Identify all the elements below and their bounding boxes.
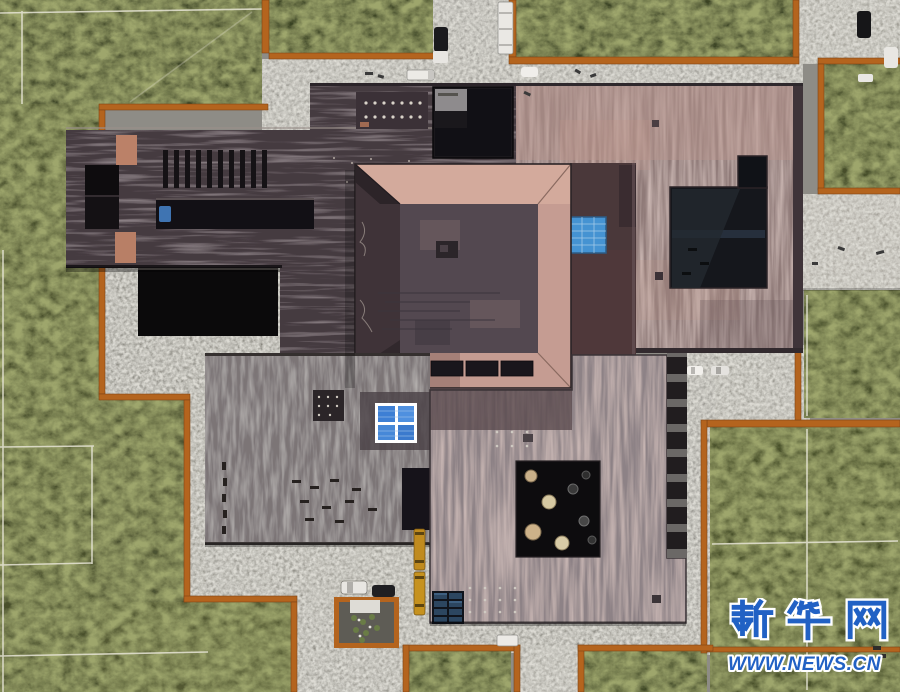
courtyard-lightwell — [433, 87, 513, 158]
solar-panels — [432, 591, 464, 624]
grass-bottom-a — [409, 651, 511, 692]
grass-right-upper — [824, 64, 900, 190]
wing-lightwell-a — [85, 165, 119, 195]
grass-top-mid — [269, 0, 433, 53]
vehicle-white-van — [858, 74, 873, 82]
roof-gap-slot — [402, 468, 431, 530]
blue-skylight — [570, 217, 606, 253]
vehicle-silver-car — [711, 366, 729, 375]
salmon-roof-patch — [115, 232, 136, 263]
vehicle-white-car — [687, 366, 703, 375]
equipment-enclosure — [334, 597, 399, 648]
roof-fins — [667, 353, 687, 558]
vehicle-white-car — [884, 47, 898, 68]
aerial-photo-canvas — [0, 0, 900, 692]
grass-top-left — [0, 0, 262, 104]
watermark-graphic: WWW.NEWS.CN — [724, 598, 900, 682]
southwest-wing-roof — [205, 353, 431, 545]
grass-top-strip — [516, 0, 793, 57]
vehicle-white-van — [433, 51, 448, 63]
roof-glass-slot — [156, 199, 314, 229]
vehicle-black-car — [857, 11, 871, 38]
watermark-url: WWW.NEWS.CN — [728, 654, 882, 675]
vehicle-white-car — [521, 67, 538, 77]
vehicle-white-car — [341, 581, 367, 594]
dark-vent-panel — [313, 390, 344, 421]
vehicle-white-truck-vertical — [498, 2, 513, 54]
grass-bottom-b — [584, 651, 707, 692]
salmon-roof-patch — [116, 135, 137, 165]
vehicle-black-car — [372, 585, 395, 597]
vehicle-yellow-bus — [414, 529, 425, 570]
glass-slot-blue-glint — [159, 206, 171, 222]
vehicle-dark-car — [434, 27, 448, 52]
umbrella-courtyard — [516, 461, 600, 557]
wing-lightwell-b — [85, 197, 119, 229]
watermark: 新华网 WWW.NEWS.CN — [724, 598, 900, 682]
vehicle-white-truck-horizontal — [407, 70, 434, 80]
south-hall-roof — [430, 353, 687, 624]
black-courtyard — [138, 268, 278, 336]
grass-right-mid — [804, 290, 900, 418]
grass-bottom-left-b — [99, 602, 291, 692]
vehicle-white-van — [497, 635, 518, 646]
studded-roof-panel — [356, 92, 428, 129]
aerial-photo: 新华网 WWW.NEWS.CN — [0, 0, 900, 692]
skylight-window — [375, 403, 417, 443]
vehicle-yellow-bus — [414, 572, 425, 615]
